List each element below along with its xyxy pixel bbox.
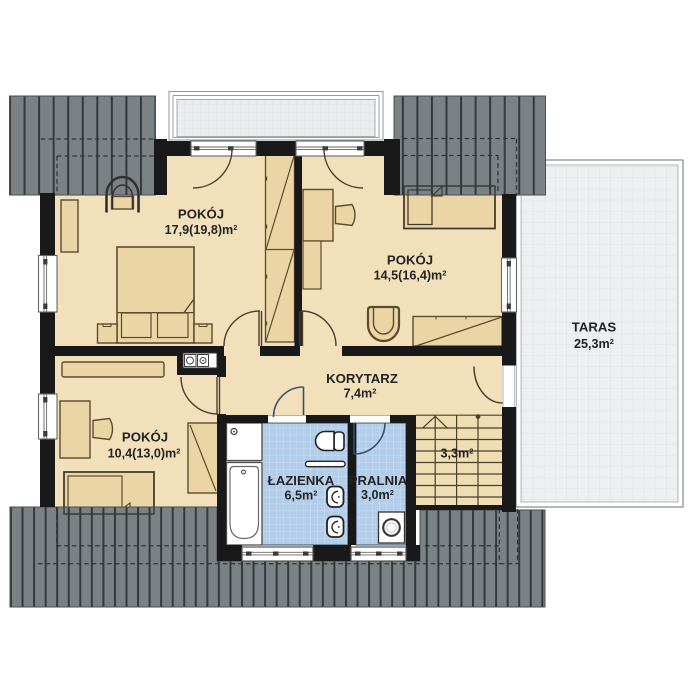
- svg-text:TARAS: TARAS: [572, 320, 617, 335]
- svg-text:14,5(16,4)m2: 14,5(16,4)m2: [374, 269, 447, 283]
- svg-text:17,9(19,8)m2: 17,9(19,8)m2: [165, 223, 238, 237]
- svg-text:POKÓJ: POKÓJ: [387, 253, 433, 268]
- svg-text:ŁAZIENKA: ŁAZIENKA: [268, 473, 335, 488]
- svg-text:6,5m2: 6,5m2: [285, 489, 318, 503]
- svg-text:KORYTARZ: KORYTARZ: [326, 371, 398, 386]
- svg-text:10,4(13,0)m2: 10,4(13,0)m2: [108, 447, 181, 461]
- svg-text:POKÓJ: POKÓJ: [178, 207, 224, 222]
- svg-text:3,0m2: 3,0m2: [361, 488, 394, 502]
- svg-text:PRALNIA: PRALNIA: [349, 473, 408, 488]
- svg-text:3,3m2: 3,3m2: [441, 447, 474, 461]
- svg-text:25,3m2: 25,3m2: [574, 337, 614, 351]
- svg-text:POKÓJ: POKÓJ: [122, 430, 168, 445]
- svg-text:7,4m2: 7,4m2: [344, 387, 377, 401]
